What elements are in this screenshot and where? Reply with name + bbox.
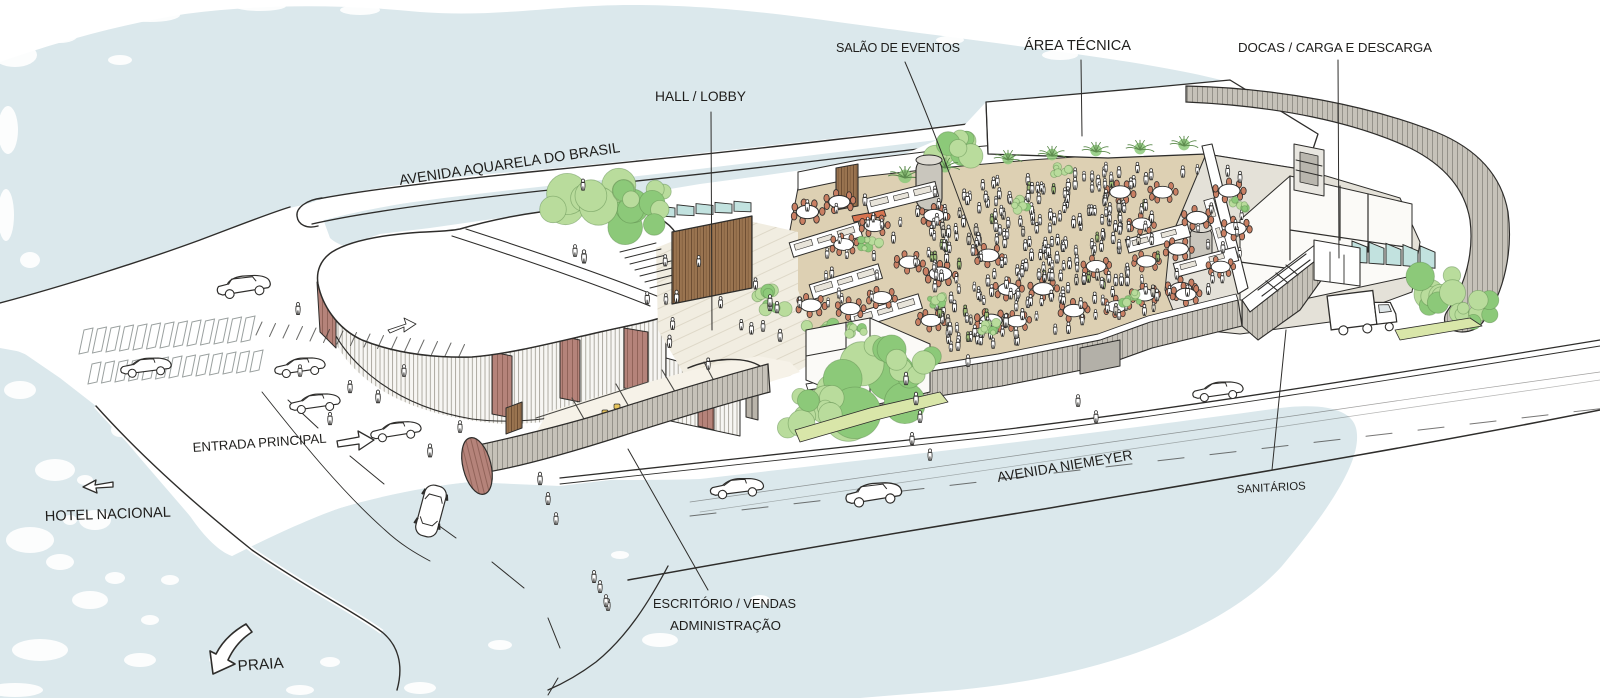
svg-text:HALL / LOBBY: HALL / LOBBY	[655, 89, 746, 104]
svg-text:PRAIA: PRAIA	[237, 655, 285, 675]
svg-text:ÁREA TÉCNICA: ÁREA TÉCNICA	[1024, 37, 1131, 54]
svg-text:SALÃO DE EVENTOS: SALÃO DE EVENTOS	[836, 41, 960, 55]
svg-text:ADMINISTRAÇÃO: ADMINISTRAÇÃO	[670, 618, 781, 633]
svg-text:DOCAS / CARGA E DESCARGA: DOCAS / CARGA E DESCARGA	[1238, 40, 1432, 55]
svg-text:ESCRITÓRIO / VENDAS: ESCRITÓRIO / VENDAS	[653, 596, 796, 611]
